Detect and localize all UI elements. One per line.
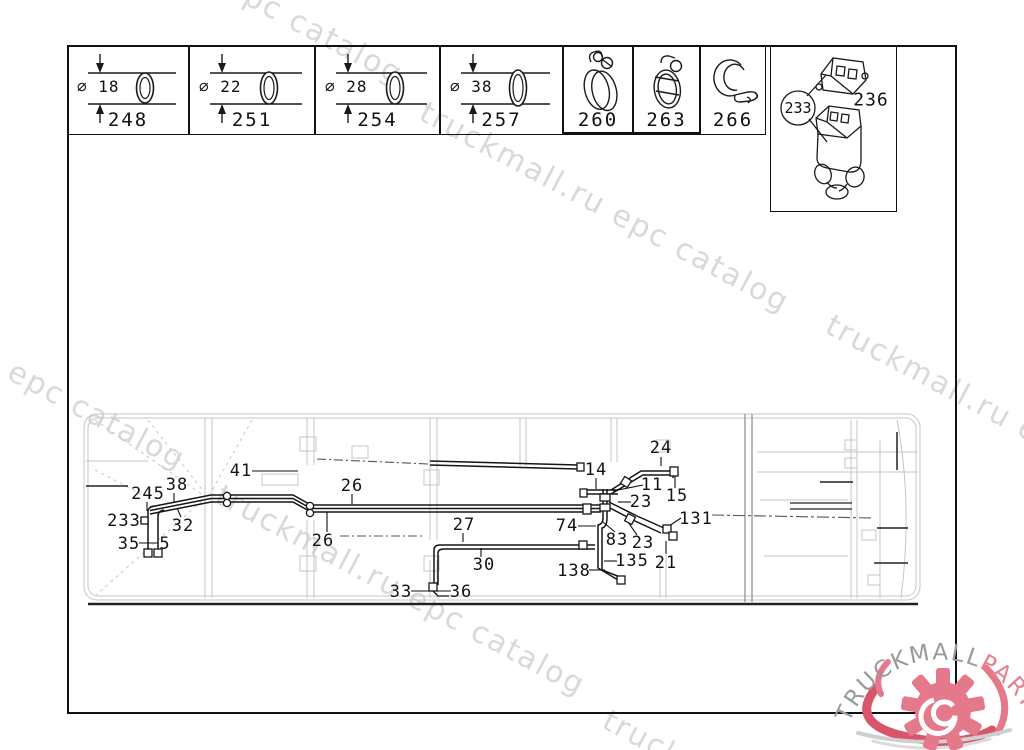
part-callout: 74 [556,516,578,536]
part-callout: 24 [650,438,672,458]
part-callout: 135 [615,551,649,571]
part-callout: 26 [341,476,363,496]
part-callout: 83 [606,530,628,550]
part-callout: 38 [166,475,188,495]
part-callout: 15 [666,486,688,506]
part-callout: 138 [557,561,591,581]
part-callout: 245 [131,484,165,504]
part-callout: 41 [230,461,252,481]
part-callout: 5 [159,534,170,554]
part-callout: 32 [172,516,194,536]
part-callout: 26 [312,531,334,551]
part-callout: 33 [390,582,412,602]
part-callout: 35 [118,534,140,554]
catalog-page: truckmall.ru epc catalog truckmall.ru ep… [0,0,1024,750]
part-callout: 27 [453,515,475,535]
part-callout: 233 [107,511,141,531]
part-callout: 30 [473,555,495,575]
part-callout: 14 [585,460,607,480]
part-callout: 21 [655,553,677,573]
part-callout: 131 [679,509,713,529]
part-callout: 23 [632,533,654,553]
part-callout: 36 [450,582,472,602]
truckmall-parts-logo: TRUCKMALLPARTS [818,600,1024,750]
part-callout: 23 [630,492,652,512]
